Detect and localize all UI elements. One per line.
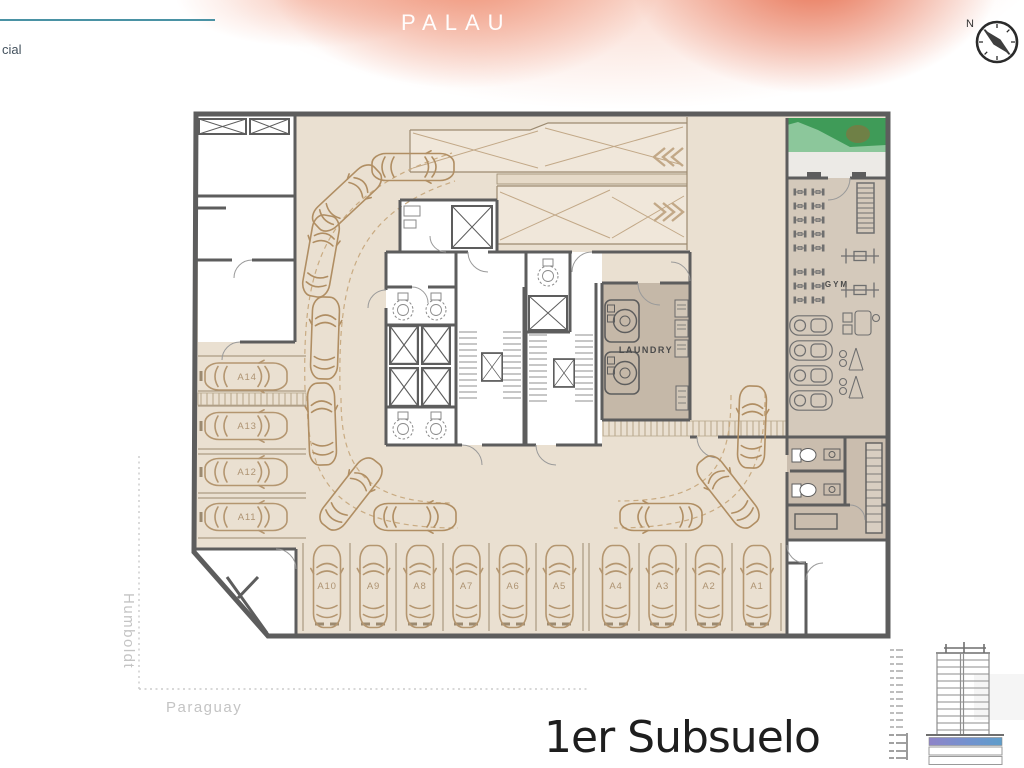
parking-spot-label: A7 [460, 581, 473, 592]
gym-floor [787, 178, 888, 437]
green-area [787, 118, 886, 179]
parking-spot-label: A1 [750, 581, 763, 592]
lockers [866, 443, 882, 533]
elevation-floor-list [890, 650, 903, 727]
compass: N [966, 18, 1017, 62]
street-label-paraguay: Paraguay [166, 699, 242, 716]
toilet-icon [800, 484, 816, 497]
elevator [390, 326, 418, 364]
parking-spot-label: A12 [237, 467, 256, 478]
parking-spot-label: A11 [238, 512, 257, 523]
parking-spot-label: A3 [656, 581, 669, 592]
elevator [482, 353, 503, 381]
compass-north-label: N [966, 18, 974, 30]
parking-spot-label: A9 [367, 581, 380, 592]
bike-rack-hatch [603, 421, 787, 436]
elevator [422, 368, 450, 406]
building-elevation-diagram [889, 642, 1024, 765]
parking-spot-label: A2 [702, 581, 715, 592]
scene: LAUNDRY [0, 0, 1024, 768]
parking-spot-label: A5 [553, 581, 566, 592]
toilet-icon [800, 449, 816, 462]
parking-spot-label: A14 [237, 372, 256, 383]
parking-spot-label: A13 [237, 421, 256, 432]
walkway-hatch-left [198, 393, 306, 405]
elevation-roof [936, 642, 990, 653]
parking-spot-label: A10 [317, 581, 336, 592]
parking-spot-label: A8 [413, 581, 426, 592]
floor-plan: LAUNDRY [194, 114, 888, 636]
street-label-humboldt: Humboldt [120, 593, 137, 669]
elevation-basement-list [889, 733, 907, 760]
elevator [390, 368, 418, 406]
elevator [422, 326, 450, 364]
gym-label: GYM [825, 280, 849, 289]
highlighted-basement-level [929, 738, 1002, 746]
parking-spot-label: A6 [506, 581, 519, 592]
laundry-label: LAUNDRY [619, 345, 673, 355]
elevator [554, 359, 575, 387]
parking-spot-label: A4 [609, 581, 622, 592]
